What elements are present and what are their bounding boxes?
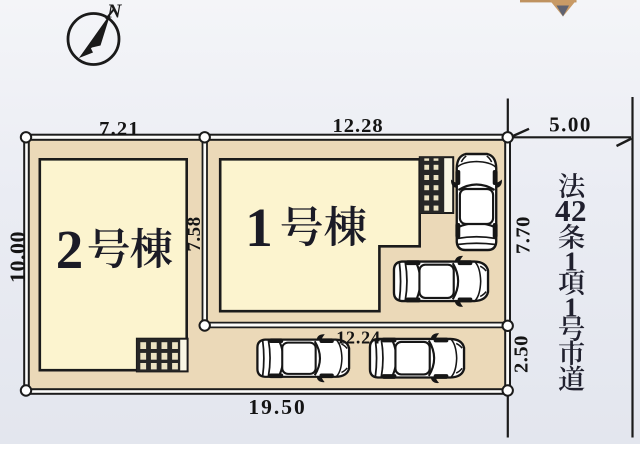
svg-text:10.00: 10.00 [5, 231, 30, 283]
svg-text:19.50: 19.50 [248, 395, 306, 419]
svg-text:2: 2 [56, 219, 84, 280]
svg-text:7.21: 7.21 [99, 118, 140, 140]
svg-text:N: N [106, 1, 123, 23]
svg-text:7.58: 7.58 [184, 216, 205, 251]
svg-text:12.28: 12.28 [332, 115, 383, 137]
svg-text:1: 1 [245, 197, 273, 258]
svg-text:42: 42 [555, 193, 587, 228]
svg-text:5.00: 5.00 [549, 112, 592, 136]
svg-text:12.24: 12.24 [336, 328, 381, 348]
svg-text:2.50: 2.50 [511, 335, 533, 373]
svg-text:1: 1 [564, 293, 578, 323]
svg-text:7.70: 7.70 [513, 216, 535, 254]
